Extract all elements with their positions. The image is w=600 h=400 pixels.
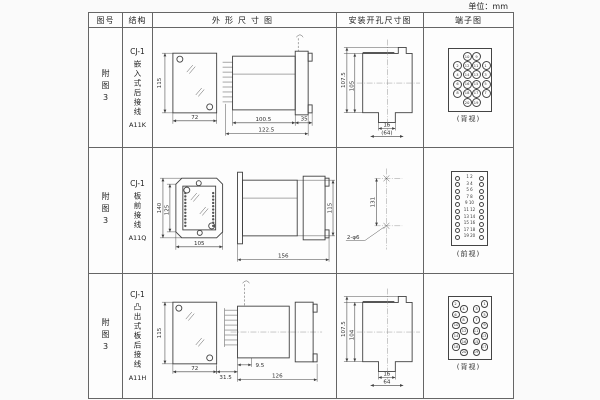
mounting-cell: 131 2-φ6	[337, 148, 424, 274]
dim-body-height: 115	[328, 202, 334, 213]
terminal-box: 1 23 45 67 89 1011 1213 1415 1617 1819 2…	[451, 171, 488, 246]
terminal-pin	[455, 222, 460, 227]
terminal-pin	[455, 189, 460, 194]
terminal-pin: 2	[453, 61, 462, 70]
terminal-pair-numbers: 1 2	[461, 175, 479, 179]
terminal-cell: 1 23 45 67 89 1011 1213 1415 1617 1819 2…	[424, 148, 513, 274]
terminal-pin: 4	[453, 70, 462, 79]
terminal-pin: 13	[472, 70, 481, 79]
dim-front-width: 105	[194, 240, 205, 246]
terminal-pin	[479, 176, 484, 181]
terminal-pin: 19	[472, 98, 481, 107]
terminal-view-label: (背视)	[424, 362, 513, 372]
terminal-pin	[479, 195, 484, 200]
figure-no-cell: 附图3	[89, 148, 123, 274]
outline-cell: 140 125 105 156 115	[153, 148, 337, 274]
dim-span: 64	[383, 379, 391, 385]
mounting-cell: 107.5 104 16 64	[337, 274, 424, 398]
terminal-pin: 11	[473, 327, 481, 335]
header-terminal: 端子图	[424, 13, 513, 28]
structure-cell: CJ-1 凸出式板后接线 A11H	[123, 274, 153, 398]
terminal-pin: 9	[481, 322, 489, 330]
dim-front-width: 72	[191, 114, 198, 120]
datasheet-page: 单位：mm 图号 结构 外形尺寸图 安装开孔尺寸图 端子图 附图3 CJ-1 嵌…	[0, 0, 600, 400]
dim-slot-width: 16	[383, 372, 391, 378]
terminal-pin: 4	[460, 305, 468, 313]
dim-stub-depth: 9.5	[255, 363, 264, 369]
terminal-pin	[455, 182, 460, 187]
dim-outer-height: 107.5	[341, 71, 347, 87]
terminal-pin	[479, 209, 484, 214]
terminal-pin: 3	[473, 305, 481, 313]
dim-inner-height: 104	[349, 329, 355, 340]
terminal-pin: 12	[463, 61, 472, 70]
structure-code: A11K	[129, 121, 146, 129]
terminal-box: 1092121114141336161558181772019	[448, 48, 492, 112]
dim-slot-width: 16	[383, 122, 391, 128]
outline-drawing-a11h: 115 72 31.5 9.5 126	[153, 274, 336, 398]
terminal-pair-numbers: 11 12	[461, 208, 479, 212]
terminal-pin: 6	[453, 80, 462, 89]
terminal-pair-numbers: 19 20	[461, 234, 479, 238]
terminal-cell: 2468101214161820135791113151719 (背视)	[424, 274, 513, 398]
terminal-pin: 13	[481, 332, 489, 340]
terminal-pin: 15	[473, 338, 481, 346]
terminal-pin: 20	[463, 98, 472, 107]
terminal-pin: 5	[482, 80, 491, 89]
terminal-pin	[455, 209, 460, 214]
dim-body-depth: 100.5	[255, 116, 271, 122]
structure-code: A11Q	[129, 234, 147, 242]
terminal-pin: 18	[463, 89, 472, 98]
terminal-pin: 12	[460, 327, 468, 335]
unit-label: 单位：mm	[468, 1, 508, 12]
dim-front-outer-height: 140	[157, 202, 163, 213]
terminal-pin	[455, 215, 460, 220]
terminal-pin	[479, 189, 484, 194]
dim-front-inner-height: 125	[164, 204, 170, 215]
terminal-pin: 16	[460, 338, 468, 346]
dim-total-depth: 122.5	[258, 127, 274, 133]
terminal-pin	[479, 222, 484, 227]
dim-hole-spacing: 131	[371, 196, 377, 207]
terminal-pin	[479, 202, 484, 207]
dim-front-height: 115	[157, 77, 163, 88]
outline-cell: 115 72 31.5 9.5 126	[153, 274, 337, 398]
dim-flange-depth: 35	[301, 116, 309, 122]
terminal-pin: 14	[452, 332, 460, 340]
structure-model: CJ-1	[130, 290, 145, 299]
terminal-pin: 3	[482, 70, 491, 79]
mounting-cell: 107.5 105 16 (64)	[337, 28, 424, 148]
terminal-pair-numbers: 5 6	[461, 188, 479, 192]
terminal-pin	[479, 228, 484, 233]
terminal-pair-numbers: 3 4	[461, 182, 479, 186]
terminal-pin: 2	[452, 300, 460, 308]
terminal-pin: 17	[472, 89, 481, 98]
structure-model: CJ-1	[130, 179, 145, 188]
terminal-pair-numbers: 13 14	[461, 215, 479, 219]
terminal-pair-numbers: 7 8	[461, 195, 479, 199]
terminal-pin: 17	[481, 343, 489, 351]
terminal-pin: 16	[463, 80, 472, 89]
figure-no-cell: 附图3	[89, 274, 123, 398]
figure-no-cell: 附图3	[89, 28, 123, 148]
mounting-drawing-a11q: 131 2-φ6	[337, 148, 423, 274]
terminal-pin	[455, 195, 460, 200]
terminal-pin	[455, 228, 460, 233]
terminal-pin: 8	[453, 89, 462, 98]
terminal-pin	[455, 202, 460, 207]
terminal-pin: 20	[460, 349, 468, 357]
dim-front-width: 72	[191, 366, 198, 372]
terminal-cell: 1092121114141336161558181772019 (背视)	[424, 28, 513, 148]
structure-code: A11H	[129, 374, 147, 382]
terminal-pin: 18	[452, 343, 460, 351]
mounting-drawing-a11h: 107.5 104 16 64	[337, 274, 423, 398]
terminal-pin: 15	[472, 80, 481, 89]
terminal-pin: 1	[481, 300, 489, 308]
terminal-pin: 7	[473, 316, 481, 324]
structure-mount-type: 凸出式板后接线	[132, 303, 143, 370]
terminal-pin: 14	[463, 70, 472, 79]
outline-cell: 115 72 100.5 35 122.5	[153, 28, 337, 148]
figure-no-text: 附图3	[100, 318, 111, 355]
terminal-pin	[455, 176, 460, 181]
structure-cell: CJ-1 嵌入式后接线 A11K	[123, 28, 153, 148]
structure-mount-type: 板前接线	[132, 192, 143, 230]
terminal-pair-numbers: 15 16	[461, 221, 479, 225]
header-outline: 外形尺寸图	[153, 13, 337, 28]
terminal-pin	[479, 235, 484, 240]
structure-mount-type: 嵌入式后接线	[132, 60, 143, 117]
terminal-pin: 19	[473, 349, 481, 357]
dim-outer-height: 107.5	[341, 321, 347, 337]
terminal-pin: 8	[460, 316, 468, 324]
terminal-pin	[455, 235, 460, 240]
terminal-pin: 11	[472, 61, 481, 70]
dim-body-depth: 156	[278, 253, 289, 259]
dim-span: (64)	[381, 130, 392, 136]
terminal-pin: 5	[481, 311, 489, 319]
outline-drawing-a11q: 140 125 105 156 115	[153, 148, 336, 274]
terminal-pair-numbers: 17 18	[461, 228, 479, 232]
dim-pin-depth: 31.5	[219, 375, 232, 381]
outline-drawing-a11k: 115 72 100.5 35 122.5	[153, 28, 336, 148]
dim-body-depth: 126	[272, 373, 283, 379]
header-mounting: 安装开孔尺寸图	[337, 13, 424, 28]
header-figure-no: 图号	[89, 13, 123, 28]
hole-size-label: 2-φ6	[347, 235, 360, 241]
terminal-pin: 7	[482, 89, 491, 98]
dim-inner-height: 105	[349, 80, 355, 91]
figure-no-text: 附图3	[100, 69, 111, 106]
terminal-box: 2468101214161820135791113151719	[448, 296, 492, 360]
terminal-pin: 10	[452, 322, 460, 330]
terminal-pin: 1	[482, 61, 491, 70]
terminal-pin: 6	[452, 311, 460, 319]
terminal-pin	[479, 215, 484, 220]
terminal-pair-numbers: 9 10	[461, 201, 479, 205]
terminal-view-label: (前视)	[424, 249, 513, 259]
header-structure: 结构	[123, 13, 153, 28]
structure-model: CJ-1	[130, 47, 145, 56]
terminal-pin: 9	[472, 52, 481, 61]
figure-no-text: 附图3	[100, 192, 111, 229]
mounting-drawing-a11k: 107.5 105 16 (64)	[337, 28, 423, 148]
spec-table: 图号 结构 外形尺寸图 安装开孔尺寸图 端子图 附图3 CJ-1 嵌入式后接线 …	[88, 12, 514, 399]
dim-front-height: 115	[157, 327, 163, 338]
terminal-view-label: (背视)	[424, 114, 513, 124]
terminal-pin	[479, 182, 484, 187]
terminal-pin: 10	[463, 52, 472, 61]
structure-cell: CJ-1 板前接线 A11Q	[123, 148, 153, 274]
